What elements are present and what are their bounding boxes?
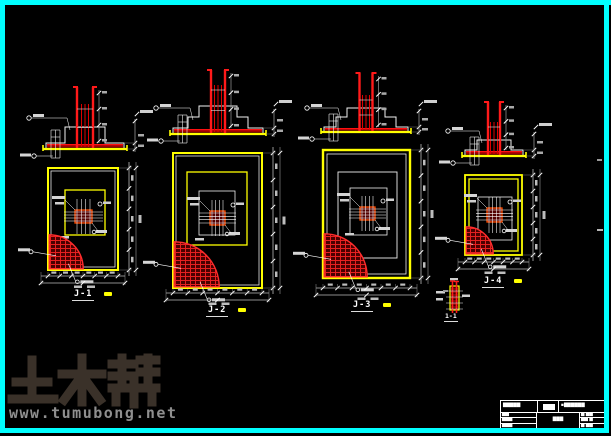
title-block: ▇▇▇▇▇ ▪▇▇▇▇▇▇ ▇▇ ▇▇▇ ▇▇▇ ▇▇▇ ▇ ▇▇ ▇▇ ▇ ▇… bbox=[500, 400, 605, 430]
foundation-detail-j1 bbox=[18, 87, 153, 288]
yellow-marker bbox=[104, 292, 112, 296]
title-block-cell: ▪▇▇▇▇▇▇ bbox=[559, 401, 604, 412]
drawing-area[interactable] bbox=[0, 0, 611, 436]
title-block-drawing-name-cell: ▇▇▇ bbox=[537, 413, 580, 428]
watermark-logo bbox=[12, 358, 156, 404]
watermark-url: www.tumubong.net bbox=[9, 404, 178, 422]
foundation-section bbox=[20, 87, 153, 158]
foundation-plan bbox=[435, 169, 546, 274]
column-section-detail bbox=[436, 278, 470, 313]
title-block-row1: ▇▇▇▇▇ ▪▇▇▇▇▇▇ bbox=[501, 401, 604, 413]
foundation-detail-j4 bbox=[435, 102, 552, 274]
title-block-row2: ▇▇ ▇▇▇ ▇▇▇ ▇▇▇ ▇ ▇▇ ▇▇ ▇ ▇ ▇▇ bbox=[501, 413, 604, 428]
title-block-cell bbox=[538, 401, 559, 412]
foundation-section bbox=[298, 73, 437, 141]
foundation-plan bbox=[18, 162, 142, 288]
title-block-right-column: ▇ ▇▇ ▇▇ ▇ ▇ ▇▇ bbox=[580, 413, 604, 428]
yellow-marker bbox=[514, 279, 522, 283]
label-j2: J-2 bbox=[206, 305, 246, 315]
foundation-detail-j3 bbox=[293, 73, 437, 300]
frame-border-bottom bbox=[0, 428, 609, 433]
title-block-cell: ▇▇▇▇▇ bbox=[501, 401, 538, 412]
frame-border-top bbox=[0, 0, 611, 5]
label-j3: J-3 bbox=[351, 300, 391, 310]
foundation-section bbox=[439, 102, 552, 165]
foundation-section bbox=[147, 70, 292, 143]
frame-border-right bbox=[604, 0, 609, 433]
label-detail-1-1: 1-1 bbox=[444, 312, 458, 320]
yellow-marker bbox=[383, 303, 391, 307]
frame-border-left bbox=[0, 0, 5, 433]
label-j1: J-1 bbox=[72, 289, 112, 299]
foundation-plan bbox=[143, 147, 286, 305]
label-j4: J-4 bbox=[482, 276, 522, 286]
title-block-left-column: ▇▇ ▇▇▇ ▇▇▇ bbox=[501, 413, 537, 428]
foundation-detail-j2 bbox=[143, 70, 292, 305]
yellow-marker bbox=[238, 308, 246, 312]
foundation-plan bbox=[293, 144, 434, 300]
cad-viewport: J-1 J-2 J-3 J-4 1-1 www.tumubong.net ▇▇▇… bbox=[0, 0, 611, 436]
